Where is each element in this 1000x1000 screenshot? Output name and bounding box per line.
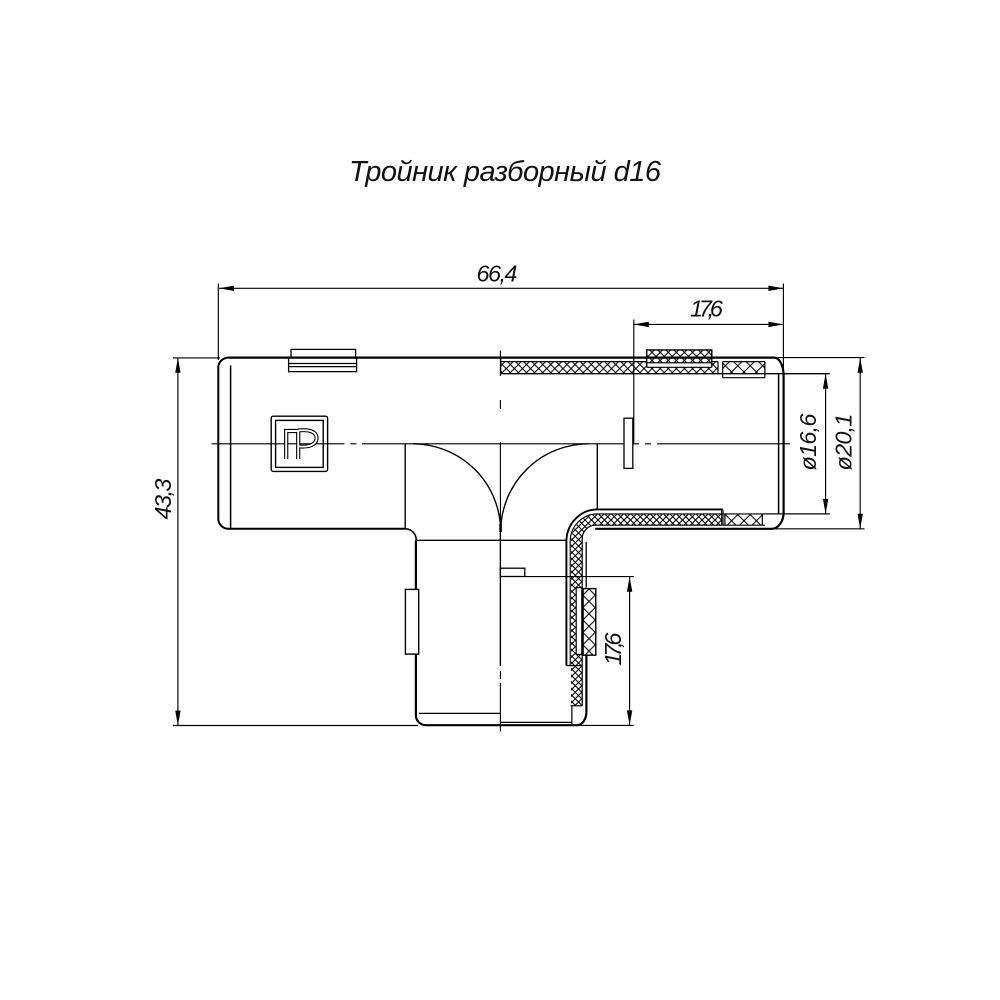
svg-text:43,3: 43,3 <box>150 479 176 520</box>
svg-text:66,4: 66,4 <box>477 261 518 287</box>
svg-text:17,6: 17,6 <box>600 632 626 666</box>
svg-text:ø20,1: ø20,1 <box>831 414 857 471</box>
svg-text:Тройник разборный d16: Тройник разборный d16 <box>349 156 662 188</box>
svg-text:ø16,6: ø16,6 <box>795 413 821 471</box>
svg-text:17,6: 17,6 <box>690 296 724 322</box>
